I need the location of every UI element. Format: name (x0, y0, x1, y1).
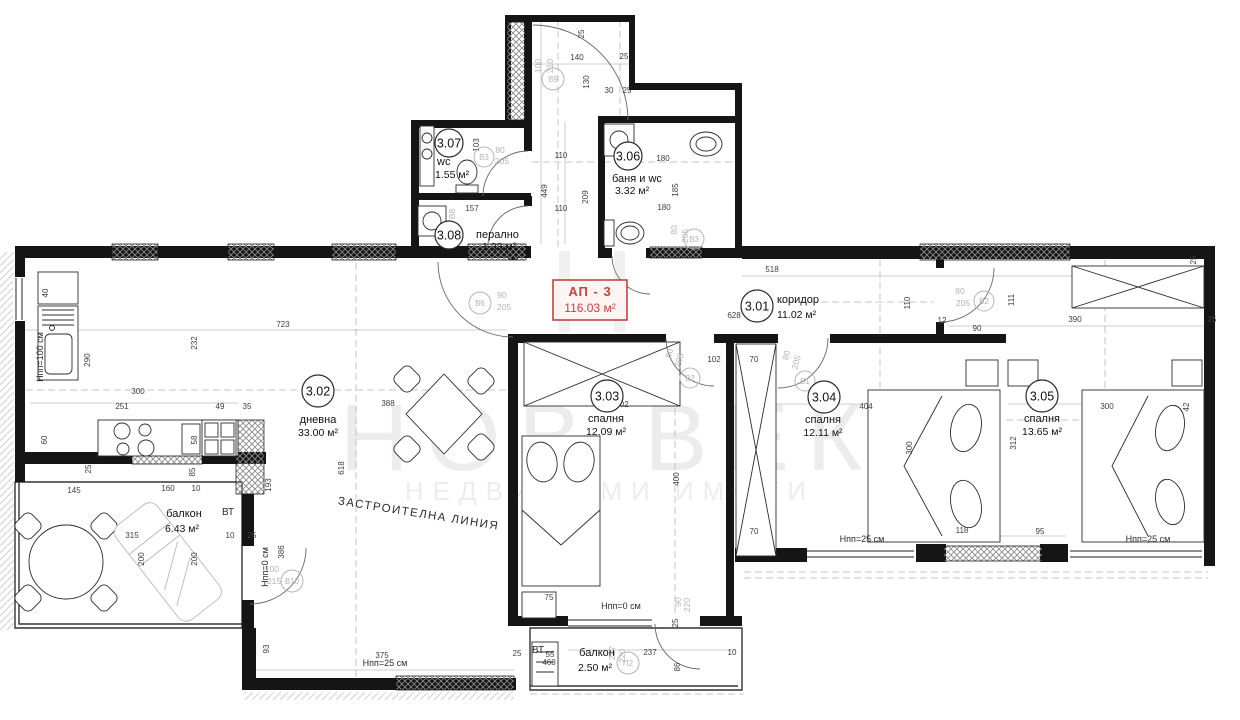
note-label: Нпп=25 см (1126, 534, 1171, 544)
apartment-area: 116.03 м² (564, 301, 615, 315)
door-size-label: 205 (956, 298, 970, 308)
room-area: 13.65 м² (1022, 426, 1062, 438)
dimension-label: 93 (262, 644, 271, 653)
balcony-area: 2.50 м² (578, 662, 613, 674)
balcony-name: балкон (166, 508, 202, 520)
stove-burner (139, 424, 151, 436)
dimension-label: 300 (131, 387, 145, 396)
room-number: 3.03 (595, 390, 619, 404)
room-number: 3.07 (437, 137, 461, 151)
nightstand (966, 360, 998, 386)
room-area: 3.32 м² (615, 185, 650, 197)
room-area: 33.00 м² (298, 427, 338, 439)
door-tag-letter: В2 (979, 297, 989, 306)
room-number: 3.01 (745, 300, 769, 314)
dimension-label: 75 (545, 593, 554, 602)
stove-burner (117, 443, 129, 455)
dimension-label: 140 (570, 53, 584, 62)
room-area: 12.11 м² (803, 427, 843, 439)
room-area: 1.55 м² (435, 169, 470, 181)
dimension-label: 518 (765, 265, 779, 274)
apartment-number: АП - 3 (568, 284, 611, 299)
dimension-label: 111 (1007, 293, 1016, 306)
door-size-label: 205 (495, 156, 509, 166)
dimension-label: 400 (672, 472, 681, 486)
dimension-label: 185 (671, 183, 680, 197)
dimension-label: 723 (276, 320, 290, 329)
note-label: ВТ (222, 507, 234, 518)
dimension-label: 209 (581, 190, 590, 204)
dimension-label: 25 (577, 29, 586, 38)
dimension-label: 300 (905, 441, 914, 455)
door-size-label: В8 (447, 209, 457, 220)
dimension-label: 25 (84, 464, 93, 473)
balcony-name: балкон (579, 647, 615, 659)
dimension-label: 237 (643, 648, 657, 657)
door-tag-letter: В3 (479, 153, 489, 162)
dimension-label: 10 (728, 648, 737, 657)
balcony-area: 6.43 м² (165, 523, 200, 535)
dimension-label: 25 (248, 531, 257, 540)
room-area: 11.02 м² (777, 309, 817, 321)
room-area: 1.33 м² (482, 241, 517, 253)
dimension-label: 25 (623, 86, 632, 95)
room-name: перално (476, 229, 519, 241)
dimension-label: 386 (277, 545, 286, 559)
dimension-label: 86 (673, 662, 682, 671)
window-gap (13, 277, 26, 321)
dimension-label: 25 (671, 618, 680, 627)
dimension-label: 42 (1182, 402, 1191, 411)
dimension-label: 25 (513, 649, 522, 658)
floor-plan-canvas: Н НОВ ВЕК НЕДВИЖИМИ ИМОТИ (0, 0, 1240, 720)
room-name: спалня (588, 413, 624, 425)
room-number: 3.06 (616, 150, 640, 164)
dimension-label: 251 (115, 402, 129, 411)
dimension-label: 70 (750, 527, 759, 536)
door-size-label: 210 (545, 59, 555, 73)
room-number: 3.05 (1030, 390, 1054, 404)
room-name: коридор (777, 294, 819, 306)
note-label: Нпп=100 см (35, 332, 45, 382)
dimension-label: 85 (188, 467, 197, 476)
door-size-label: 100 (533, 59, 543, 73)
dimension-label: 110 (555, 151, 568, 160)
dimension-label: 460 (542, 658, 556, 667)
dimension-label: 180 (657, 203, 671, 212)
dimension-label: 300 (1100, 402, 1114, 411)
dimension-label: 388 (381, 399, 395, 408)
dimension-label: 118 (956, 526, 969, 535)
dimension-label: 58 (190, 435, 199, 444)
apartment-label: АП - 3 116.03 м² (553, 280, 627, 320)
dimension-label: 102 (707, 355, 721, 364)
room-name: дневна (300, 414, 338, 426)
door-size-label: 90 (497, 290, 507, 300)
door-tag-letter: В2 (685, 374, 695, 383)
room-number: 3.08 (437, 229, 461, 243)
dimension-label: 145 (67, 486, 81, 495)
door-size-label: 80 (669, 225, 679, 235)
note-label: Нпп=0 см (601, 601, 641, 611)
dining-table-set (391, 363, 496, 464)
dimension-label: 95 (1036, 527, 1045, 536)
door-tag-letter: В6 (475, 299, 485, 308)
dimension-label: 315 (125, 531, 139, 540)
dimension-label: 200 (190, 552, 199, 566)
door-tag-letter: В9 (548, 75, 558, 84)
door-size-label: 80 (495, 145, 505, 155)
dimension-label: 232 (190, 336, 199, 350)
door-tag-letter: В10 (285, 577, 300, 586)
dimension-label: 103 (472, 138, 481, 152)
dimension-label: 618 (337, 461, 346, 475)
note-label: Нпп=25 см (840, 534, 885, 544)
room-name: wc (436, 156, 451, 168)
door-size-label: 205 (497, 302, 511, 312)
dimension-label: 60 (40, 435, 49, 444)
wardrobe-305 (1072, 266, 1204, 308)
door-tag-letter: В3 (689, 235, 699, 244)
dimension-label: 390 (1068, 315, 1082, 324)
room-number: 3.02 (306, 385, 330, 399)
door-size-label: 220 (682, 598, 692, 612)
dimension-label: 49 (216, 402, 225, 411)
note-label: Нпп=25 см (363, 658, 408, 668)
room-name: баня и wc (612, 173, 662, 185)
door-tag-letter: В1 (800, 377, 810, 386)
dimension-label: 628 (727, 311, 741, 320)
note-label: Нпп=0 см (260, 547, 270, 587)
dimension-label: 130 (582, 75, 591, 89)
round-table (29, 525, 103, 599)
dimension-label: 25 (1208, 315, 1217, 324)
dimension-label: 200 (137, 552, 146, 566)
dimension-label: 12 (938, 316, 947, 325)
floor-plan-drawing: Н НОВ ВЕК НЕДВИЖИМИ ИМОТИ (0, 0, 1240, 720)
dimension-label: 160 (161, 484, 175, 493)
dimension-label: 40 (41, 288, 50, 297)
door-size-label: 80 (955, 286, 965, 296)
room-name: спалня (805, 414, 841, 426)
wardrobe-corridor (736, 344, 776, 556)
stove-burner (114, 423, 130, 439)
kitchen-sink (45, 334, 72, 374)
dimension-label: 449 (540, 184, 549, 198)
stove-burner (138, 440, 154, 456)
dimension-label: 90 (973, 324, 982, 333)
dimension-label: 312 (1009, 436, 1018, 450)
note-label: ВТ (532, 645, 544, 656)
dimension-label: 180 (656, 154, 670, 163)
dimension-label: 30 (605, 86, 614, 95)
dimension-label: 70 (750, 355, 759, 364)
dimension-label: 110 (903, 296, 912, 309)
dimension-label: 10 (226, 531, 235, 540)
dimension-label: 25 (1189, 255, 1198, 264)
room-number: 3.04 (812, 391, 836, 405)
room-area: 12.09 м² (586, 426, 626, 438)
door-tag-letter: П2 (623, 659, 634, 668)
dimension-label: 110 (555, 204, 568, 213)
dimension-label: 290 (83, 353, 92, 367)
dimension-label: 193 (264, 478, 273, 492)
dimension-label: 404 (859, 402, 873, 411)
room-name: спалня (1024, 413, 1060, 425)
nightstand (1172, 360, 1202, 386)
dimension-label: 35 (243, 402, 252, 411)
dimension-label: 10 (192, 484, 201, 493)
dimension-label: 25 (620, 52, 629, 61)
dimension-label: 157 (465, 204, 479, 213)
